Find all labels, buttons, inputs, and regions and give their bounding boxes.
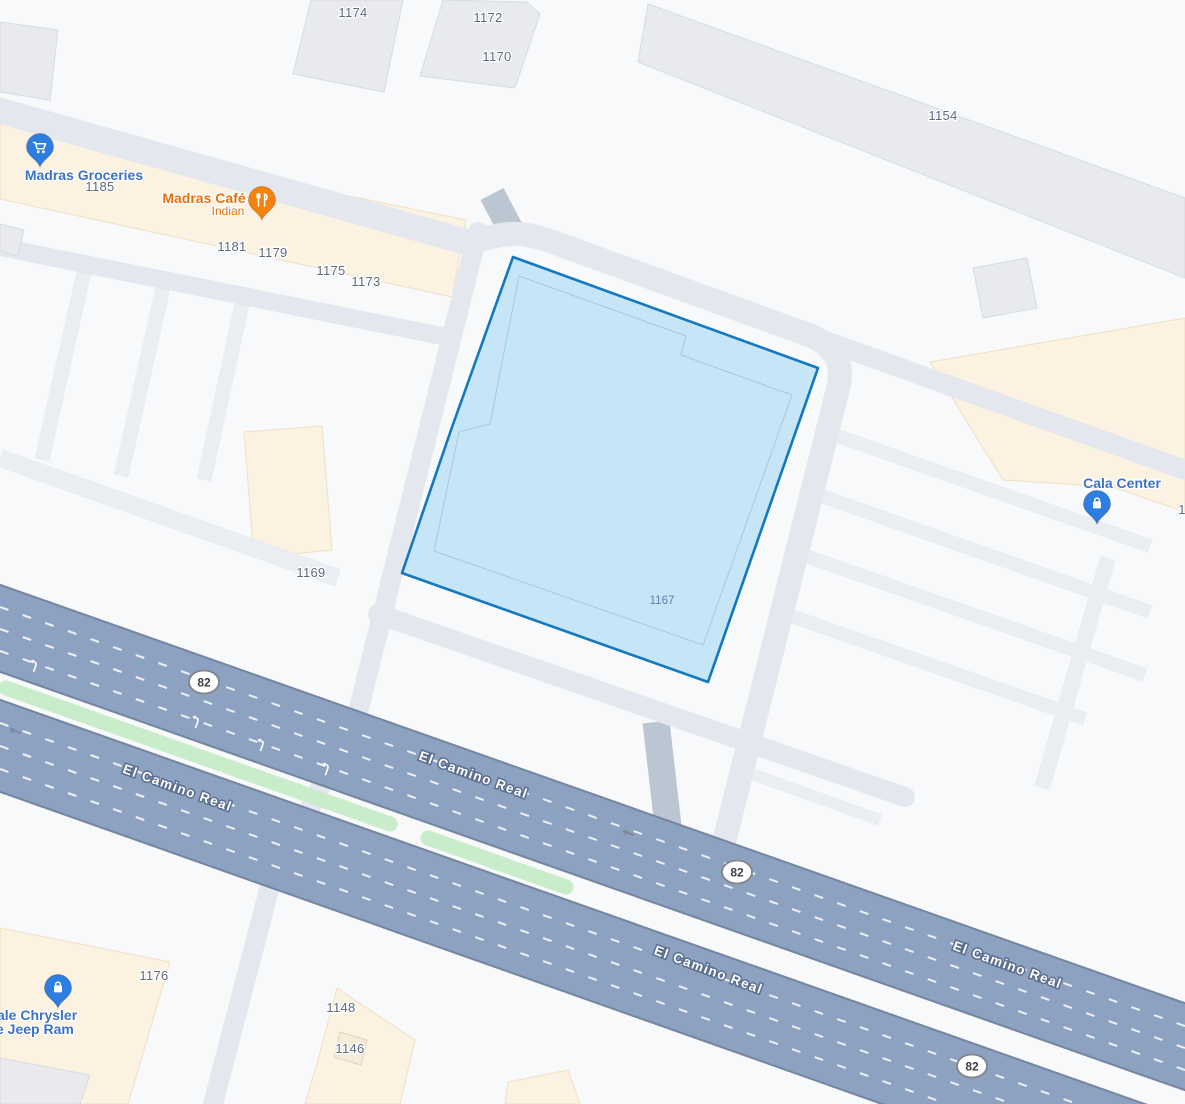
poi-label-madras-groceries[interactable]: Madras Groceries <box>25 167 143 183</box>
parcel-number-label: 1167 <box>650 595 675 607</box>
building-small-right <box>973 258 1037 318</box>
address-1146: 1146 <box>335 1041 364 1056</box>
address-1179: 1179 <box>258 245 287 260</box>
address-1169: 1169 <box>296 565 325 580</box>
address-1176: 1176 <box>139 968 168 983</box>
route-badge-82-3: 82 <box>957 1055 987 1078</box>
map-canvas[interactable]: 1167 1174 1172 1170 1154 1181 1179 1175 … <box>0 0 1185 1104</box>
poi-label-cafe-cuisine: Indian <box>212 204 245 218</box>
building-topleft <box>0 22 58 100</box>
poi-label-dealer-line2[interactable]: e Jeep Ram <box>0 1021 74 1037</box>
address-1175: 1175 <box>316 263 345 278</box>
map-svg[interactable]: 1167 1174 1172 1170 1154 1181 1179 1175 … <box>0 0 1185 1104</box>
poi-address-1185: 1185 <box>85 179 114 194</box>
svg-text:82: 82 <box>197 676 211 690</box>
address-1172: 1172 <box>473 10 502 25</box>
poi-label-cala-center[interactable]: Cala Center <box>1083 475 1161 491</box>
address-partial: 1 <box>1178 502 1185 517</box>
address-1174: 1174 <box>338 5 367 20</box>
route-badge-82-2: 82 <box>722 861 752 884</box>
address-1170: 1170 <box>482 49 511 64</box>
building-1169 <box>244 426 332 558</box>
svg-text:82: 82 <box>730 866 744 880</box>
address-1148: 1148 <box>326 1000 355 1015</box>
route-badge-82-1: 82 <box>189 671 219 694</box>
address-1154: 1154 <box>928 108 957 123</box>
address-1181: 1181 <box>217 239 246 254</box>
address-1173: 1173 <box>351 274 380 289</box>
svg-text:82: 82 <box>965 1060 979 1074</box>
